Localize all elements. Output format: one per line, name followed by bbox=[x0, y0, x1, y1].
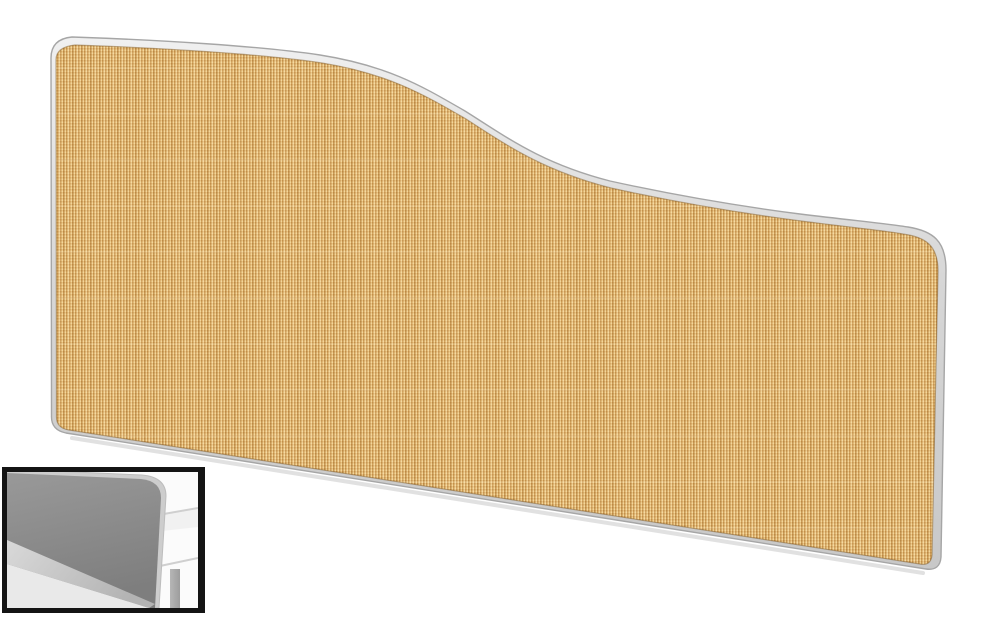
desk-mounted-preview-inset bbox=[0, 465, 210, 617]
inset-desk-leg bbox=[170, 569, 180, 608]
product-photo-stage bbox=[0, 0, 1000, 619]
